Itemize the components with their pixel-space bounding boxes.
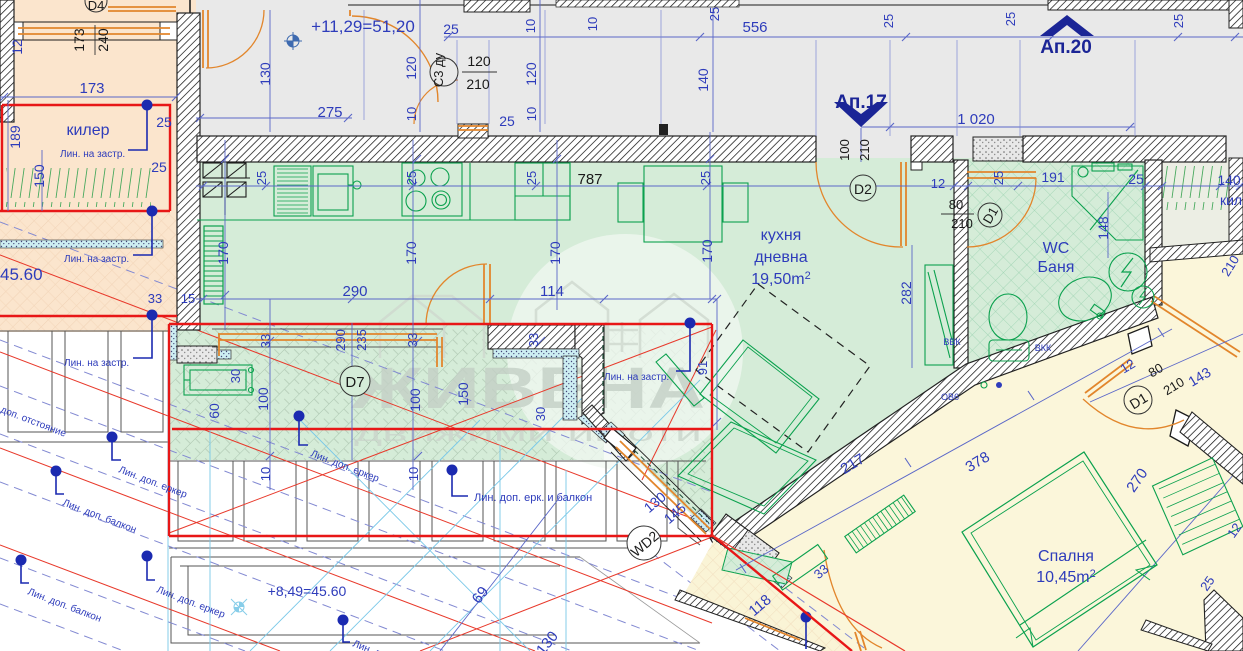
svg-text:10,45m2: 10,45m2 [1036, 568, 1096, 586]
svg-text:12: 12 [931, 176, 945, 191]
svg-text:140: 140 [1217, 172, 1241, 188]
svg-text:25: 25 [443, 21, 459, 37]
svg-text:170: 170 [215, 241, 231, 265]
svg-text:25: 25 [1003, 12, 1018, 26]
svg-text:45.60: 45.60 [0, 265, 43, 284]
svg-text:170: 170 [403, 241, 419, 265]
svg-text:33: 33 [526, 333, 541, 347]
svg-text:Спалня: Спалня [1038, 548, 1094, 565]
svg-text:114: 114 [540, 283, 564, 300]
svg-text:С3 ду: С3 ду [431, 52, 446, 87]
svg-text:килер: килер [66, 122, 109, 139]
svg-text:235: 235 [354, 329, 369, 351]
svg-text:Лин. доп. ерк. и балкон: Лин. доп. ерк. и балкон [474, 492, 592, 504]
svg-text:91: 91 [695, 361, 710, 375]
svg-text:120: 120 [403, 56, 419, 80]
svg-text:Лин. на застр.: Лин. на застр. [64, 254, 129, 265]
svg-text:173: 173 [71, 28, 87, 52]
svg-text:556: 556 [742, 19, 767, 36]
svg-text:290: 290 [342, 283, 367, 300]
svg-text:10: 10 [406, 467, 421, 481]
svg-text:33: 33 [258, 334, 273, 348]
svg-text:10: 10 [523, 19, 538, 33]
svg-text:120: 120 [523, 62, 539, 86]
svg-text:25: 25 [1128, 171, 1144, 187]
svg-text:25: 25 [524, 171, 539, 185]
svg-text:210: 210 [466, 76, 490, 92]
svg-text:WC: WC [1043, 240, 1070, 257]
svg-text:ЖИВЕНА: ЖИВЕНА [350, 356, 705, 421]
svg-text:170: 170 [699, 239, 715, 263]
svg-text:кухня: кухня [761, 227, 802, 244]
svg-text:+11,29=51,20: +11,29=51,20 [311, 17, 415, 36]
svg-text:10: 10 [404, 107, 419, 121]
svg-text:191: 191 [1041, 169, 1065, 185]
svg-text:100: 100 [837, 139, 852, 161]
svg-text:140: 140 [695, 68, 711, 92]
svg-text:25: 25 [1171, 14, 1186, 28]
svg-text:Лин. на застр.: Лин. на застр. [64, 358, 129, 369]
svg-text:дневна: дневна [754, 249, 807, 266]
svg-text:10: 10 [258, 467, 273, 481]
svg-text:282: 282 [898, 281, 914, 305]
svg-text:30: 30 [533, 407, 548, 421]
svg-text:130: 130 [257, 62, 273, 86]
svg-text:275: 275 [317, 104, 342, 121]
svg-text:173: 173 [79, 80, 104, 97]
svg-text:210: 210 [857, 139, 872, 161]
svg-text:ВКК: ВКК [1035, 343, 1052, 353]
svg-text:25: 25 [991, 171, 1006, 185]
svg-text:189: 189 [7, 125, 23, 149]
svg-text:+8,49=45.60: +8,49=45.60 [268, 583, 347, 599]
svg-text:15: 15 [181, 291, 195, 306]
svg-text:80: 80 [949, 197, 963, 212]
svg-text:10: 10 [524, 107, 539, 121]
svg-text:Ап.20: Ап.20 [1040, 37, 1092, 58]
svg-text:25: 25 [881, 14, 896, 28]
svg-text:25: 25 [499, 113, 515, 129]
svg-text:170: 170 [547, 241, 563, 265]
svg-text:Лин. на застр.: Лин. на застр. [604, 372, 669, 383]
svg-text:D2: D2 [854, 181, 872, 197]
svg-text:Баня: Баня [1038, 259, 1075, 276]
svg-text:ВВК: ВВК [943, 337, 961, 347]
svg-text:19,50m2: 19,50m2 [751, 270, 811, 288]
svg-text:33: 33 [405, 333, 420, 347]
svg-text:D7: D7 [345, 374, 364, 391]
svg-text:ОВ6: ОВ6 [941, 392, 959, 402]
svg-text:D4: D4 [88, 0, 105, 13]
svg-text:150: 150 [31, 164, 47, 188]
svg-text:движими имоти: движими имоти [354, 420, 702, 446]
svg-text:25: 25 [404, 171, 419, 185]
svg-text:787: 787 [577, 171, 602, 188]
svg-text:120: 120 [467, 53, 491, 69]
svg-text:25: 25 [707, 7, 722, 21]
svg-text:25: 25 [156, 114, 172, 130]
svg-text:25: 25 [698, 171, 713, 185]
svg-text:33: 33 [148, 291, 162, 306]
svg-text:30: 30 [228, 369, 243, 383]
svg-text:60: 60 [206, 403, 222, 419]
svg-text:240: 240 [95, 28, 111, 52]
svg-text:Лин. на застр.: Лин. на застр. [60, 149, 125, 160]
svg-text:12: 12 [9, 39, 25, 55]
svg-text:150: 150 [455, 382, 471, 406]
svg-text:100: 100 [255, 387, 271, 411]
svg-text:10: 10 [585, 17, 600, 31]
svg-text:25: 25 [151, 159, 167, 175]
svg-text:1 020: 1 020 [957, 111, 995, 128]
svg-text:100: 100 [407, 388, 423, 412]
svg-text:25: 25 [254, 171, 269, 185]
svg-text:210: 210 [951, 216, 973, 231]
svg-text:290: 290 [333, 329, 348, 351]
svg-text:148: 148 [1095, 216, 1111, 240]
svg-text:кил: кил [1220, 192, 1242, 208]
